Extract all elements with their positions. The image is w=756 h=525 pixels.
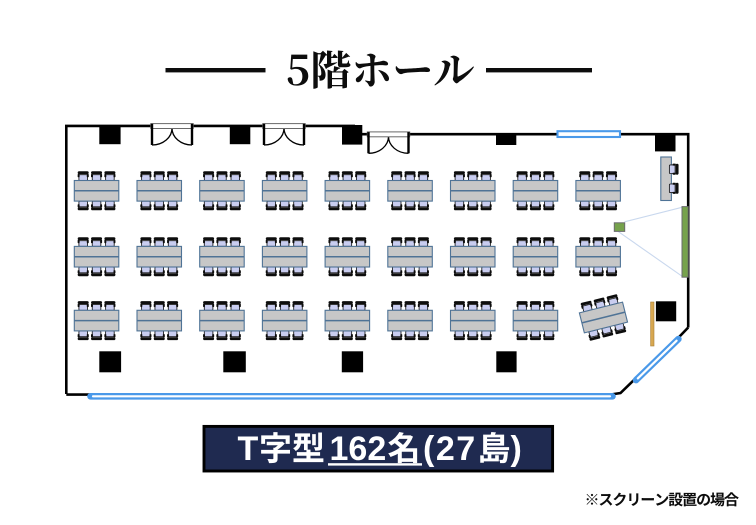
svg-text:162: 162: [330, 430, 387, 468]
svg-text:T: T: [238, 430, 259, 468]
svg-text:(27: (27: [423, 430, 477, 468]
svg-text:): ): [511, 430, 522, 468]
